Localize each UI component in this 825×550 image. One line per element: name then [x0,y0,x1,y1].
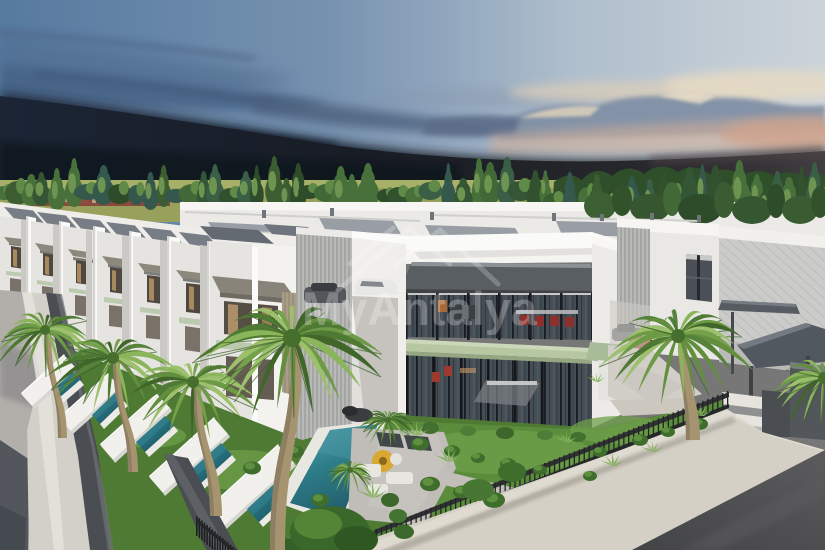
svg-text:MyAntalya: MyAntalya [302,282,538,335]
